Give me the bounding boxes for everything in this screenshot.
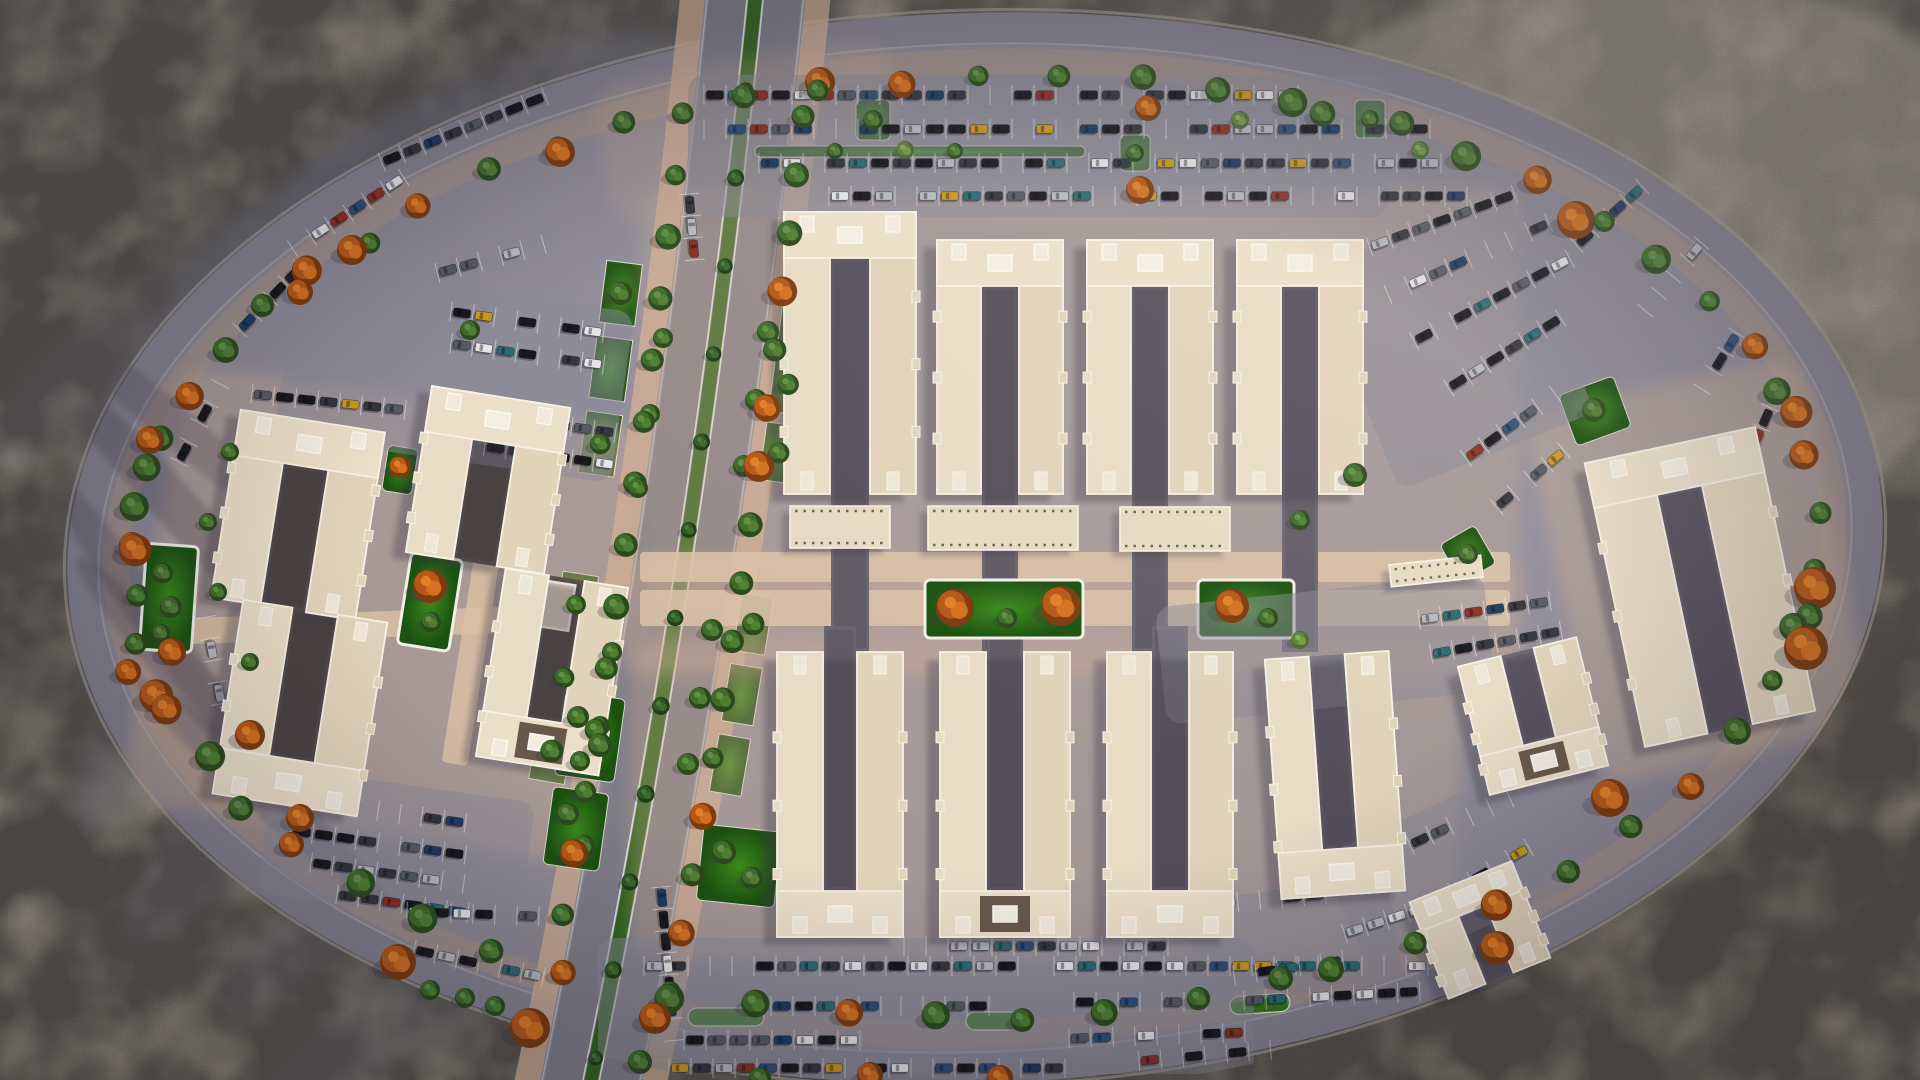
site-plan-canvas [0,0,1920,1080]
lighting-vignette [0,0,1920,1080]
aerial-site-plan-render [0,0,1920,1080]
